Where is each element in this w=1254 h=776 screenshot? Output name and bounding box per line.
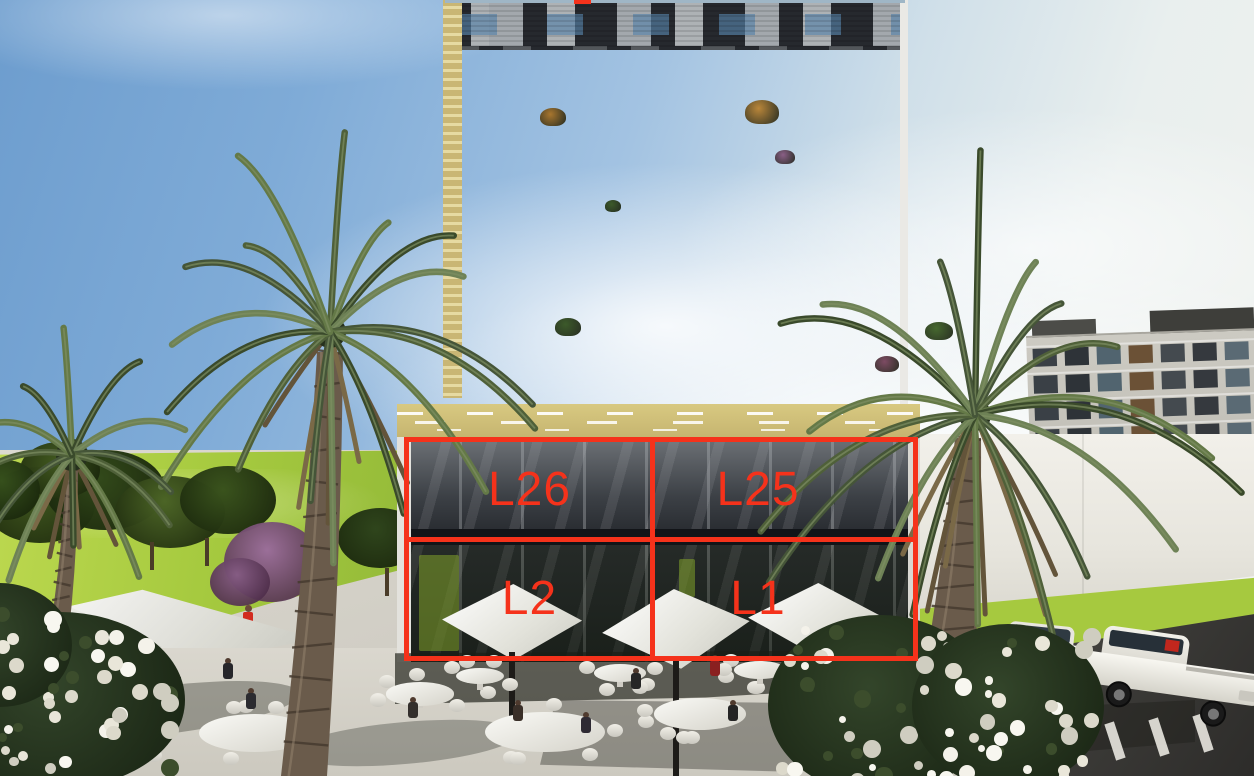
gold-mosaic-edge bbox=[443, 0, 462, 398]
tree-trunk bbox=[150, 542, 154, 570]
balcony-plant bbox=[925, 322, 953, 340]
window bbox=[1130, 399, 1155, 418]
tower-facade bbox=[445, 0, 905, 404]
jogger-head bbox=[245, 605, 252, 612]
unit-region-L2: L2 bbox=[409, 542, 650, 656]
balcony-plant bbox=[555, 318, 581, 336]
window bbox=[1034, 402, 1059, 421]
window bbox=[1193, 369, 1218, 388]
unit-region-L1: L1 bbox=[655, 542, 913, 656]
window bbox=[1098, 400, 1123, 419]
window bbox=[1065, 374, 1090, 393]
lit-soffit-band bbox=[397, 404, 920, 437]
window bbox=[1128, 345, 1153, 364]
window bbox=[1033, 375, 1058, 394]
window bbox=[1226, 395, 1251, 414]
balcony-plant bbox=[605, 200, 621, 212]
blossom-tree bbox=[210, 558, 270, 606]
window bbox=[1096, 346, 1121, 365]
window-row bbox=[445, 14, 905, 35]
tower-right-edge bbox=[900, 0, 908, 430]
roof-edge bbox=[445, 0, 905, 3]
unit-annotation-grid: L26 L25 L2 L1 bbox=[404, 437, 918, 661]
unit-region-L26: L26 bbox=[409, 442, 650, 537]
window bbox=[1032, 348, 1057, 367]
cafe-terrace-paving bbox=[0, 648, 972, 776]
background-apartment-building bbox=[1026, 328, 1254, 452]
window bbox=[1097, 373, 1122, 392]
window bbox=[1162, 397, 1187, 416]
window bbox=[1194, 396, 1219, 415]
tree-trunk bbox=[385, 568, 389, 596]
window bbox=[1064, 347, 1089, 366]
balcony-plant bbox=[540, 108, 566, 126]
architectural-render: L26 L25 L2 L1 bbox=[0, 0, 1254, 776]
unit-label: L2 bbox=[502, 575, 557, 623]
unit-label: L25 bbox=[716, 466, 799, 514]
tree-trunk bbox=[205, 538, 209, 566]
window bbox=[1161, 371, 1186, 390]
balcony-plant bbox=[875, 356, 899, 372]
cropped-annotation-mark bbox=[574, 0, 591, 4]
window bbox=[1225, 368, 1250, 387]
floor-bands bbox=[445, 0, 905, 404]
unit-region-L25: L25 bbox=[655, 442, 913, 537]
window bbox=[1066, 401, 1091, 420]
floor-band bbox=[445, 0, 905, 46]
balcony-plant bbox=[745, 100, 779, 124]
window bbox=[1224, 341, 1249, 360]
window bbox=[1129, 372, 1154, 391]
unit-label: L1 bbox=[730, 575, 785, 623]
window bbox=[1192, 342, 1217, 361]
unit-label: L26 bbox=[488, 466, 571, 514]
balcony-plant bbox=[775, 150, 795, 164]
window bbox=[1160, 344, 1185, 363]
